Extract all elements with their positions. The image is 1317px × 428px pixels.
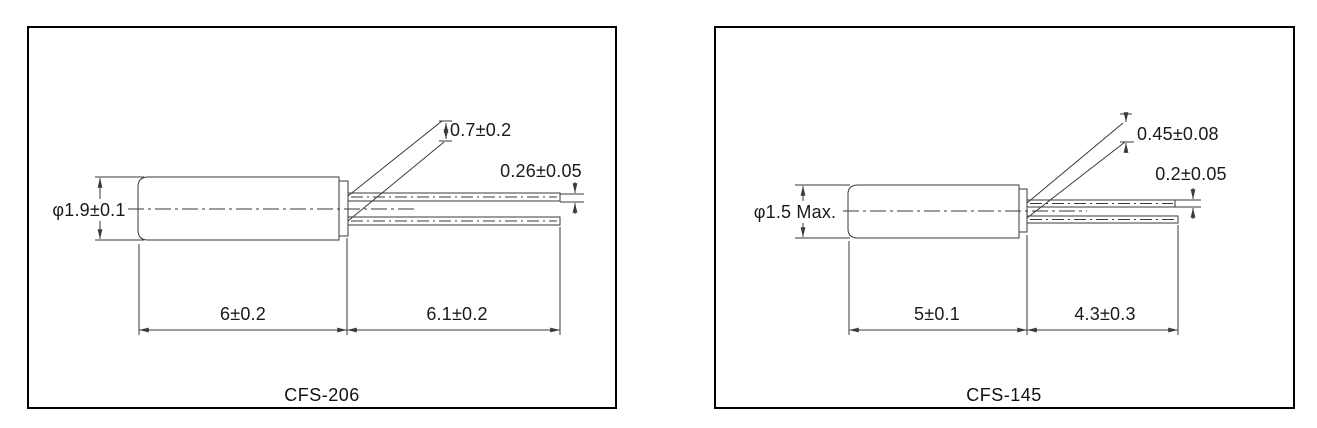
dimension-graphics	[795, 114, 1201, 335]
label-body-length: 5±0.1	[914, 305, 960, 323]
label-lead-diameter: 0.26±0.05	[500, 162, 582, 180]
panel-cfs-145: φ1.5 Max. 0.45±0.08 0.2±0.05 5±0.1 4.3±0…	[714, 26, 1295, 409]
bent-lead-bottom	[348, 142, 444, 221]
dim-lead-diameter	[560, 182, 584, 214]
label-body-length: 6±0.2	[220, 305, 266, 323]
label-lead-tip-spacing: 0.45±0.08	[1137, 125, 1219, 143]
crystal-unit-view	[843, 123, 1178, 238]
bent-lead-top	[1027, 123, 1123, 203]
dim-lead-diameter	[1175, 188, 1201, 219]
label-lead-length: 6.1±0.2	[426, 305, 487, 323]
label-body-diameter: φ1.5 Max.	[754, 203, 837, 221]
dim-lengths	[139, 227, 560, 335]
bent-lead-top	[348, 121, 442, 196]
model-name: CFS-145	[966, 386, 1042, 404]
dim-lead-tip-spacing	[1120, 114, 1134, 153]
label-body-diameter: φ1.9±0.1	[52, 201, 125, 219]
panel-cfs-206: φ1.9±0.1 0.7±0.2 0.26±0.05 6±0.2 6.1±0.2…	[27, 26, 617, 409]
label-lead-tip-spacing: 0.7±0.2	[450, 121, 511, 139]
label-lead-diameter: 0.2±0.05	[1155, 165, 1227, 183]
page: φ1.9±0.1 0.7±0.2 0.26±0.05 6±0.2 6.1±0.2…	[0, 0, 1317, 428]
model-name: CFS-206	[284, 386, 360, 404]
label-lead-length: 4.3±0.3	[1074, 305, 1135, 323]
